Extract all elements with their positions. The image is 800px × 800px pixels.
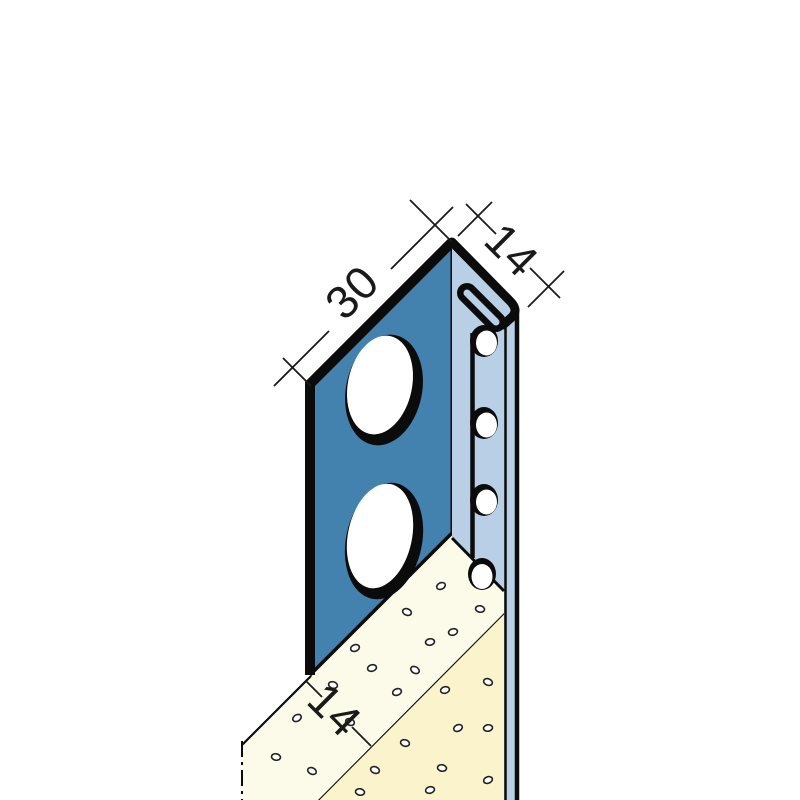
extension-line [458, 202, 492, 236]
extension-line [528, 271, 564, 307]
profile-isometric-drawing: 30 14 14 [0, 0, 800, 800]
plaster-speckle [355, 788, 365, 796]
plaster-speckle [475, 605, 485, 613]
plaster-speckle [271, 753, 281, 761]
diagram-canvas: 30 14 14 [0, 0, 800, 800]
plaster-speckle [437, 764, 447, 772]
return-flange-hole-3 [470, 484, 498, 516]
extension-line [410, 200, 452, 242]
dimension-line [466, 204, 496, 234]
plaster-speckle [425, 638, 435, 646]
return-flange-hole-4 [468, 558, 496, 590]
return-flange-hole-1 [470, 325, 498, 357]
return-flange-hole-2 [470, 407, 498, 439]
plaster-speckle [483, 724, 493, 732]
dimension-line [530, 268, 560, 298]
